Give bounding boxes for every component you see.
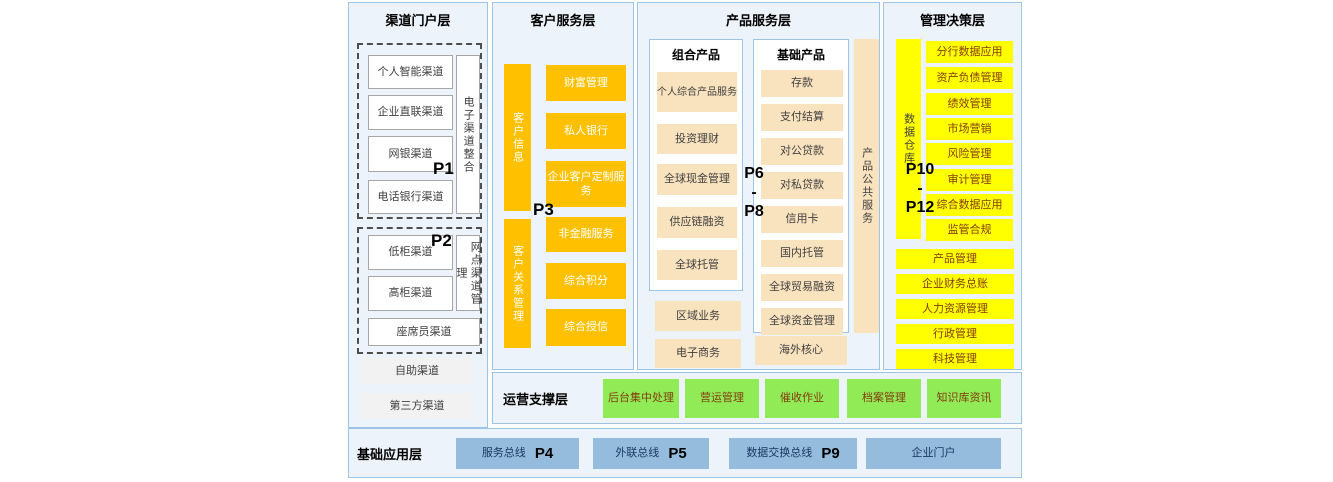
management-decision-layer-panel: 管理决策层 数据仓库 P10 - P12 分行数据应用 资产负债管理 绩效管理 … [883, 2, 1022, 370]
p2-tag: P2 [431, 231, 452, 251]
tag-separator: - [739, 183, 769, 202]
p6-p8-tag: P6 - P8 [739, 164, 769, 221]
product-box: 支付结算 [761, 104, 843, 131]
management-box: 分行数据应用 [926, 41, 1013, 63]
product-box: 区域业务 [655, 301, 741, 331]
channel-portal-layer-panel: 渠道门户层 个人智能渠道 企业直联渠道 网银渠道 电话银行渠道 电子渠道整合 P… [348, 2, 488, 428]
p5-tag: P5 [668, 444, 686, 464]
service-bus-label: 服务总线 [482, 446, 526, 460]
product-box: 全球资金管理 [761, 308, 843, 335]
management-box: 行政管理 [896, 324, 1014, 344]
channel-box: 自助渠道 [361, 358, 473, 384]
management-box: 人力资源管理 [896, 299, 1014, 319]
operations-support-layer-panel: 运营支撑层 后台集中处理 营运管理 催收作业 档案管理 知识库资讯 [492, 372, 1022, 424]
customer-info-bar: 客户信息 [504, 64, 531, 211]
customer-service-box: 财富管理 [546, 65, 626, 101]
management-box: 科技管理 [896, 349, 1014, 369]
product-public-service-bar: 产品公共服务 [854, 39, 879, 333]
operations-box: 知识库资讯 [927, 379, 1001, 418]
product-box: 全球托管 [657, 250, 737, 280]
channel-box: 座席员渠道 [368, 318, 480, 346]
channel-box: 企业直联渠道 [368, 95, 453, 130]
product-box: 对私贷款 [761, 172, 843, 199]
customer-relationship-bar: 客户关系管理 [504, 219, 531, 348]
channel-box: 高柜渠道 [368, 276, 453, 311]
customer-service-layer-panel: 客户服务层 客户信息 财富管理 私人银行 企业客户定制服务 P3 客户关系管理 … [492, 2, 634, 370]
data-exchange-bus-box: 数据交换总线 P9 [729, 438, 857, 469]
p1-tag: P1 [433, 159, 454, 179]
p4-tag: P4 [535, 444, 553, 464]
branch-channel-group: 低柜渠道 高柜渠道 网点渠道管理 座席员渠道 [357, 227, 482, 354]
enterprise-portal-label: 企业门户 [912, 446, 956, 460]
management-box: 企业财务总账 [896, 274, 1014, 294]
customer-service-box: 非金融服务 [546, 217, 626, 252]
product-box: 全球现金管理 [657, 164, 737, 195]
combo-product-title: 组合产品 [650, 46, 742, 63]
management-box: 产品管理 [896, 249, 1014, 269]
customer-service-box: 综合积分 [546, 263, 626, 299]
p12-tag: P12 [892, 198, 948, 217]
product-box: 个人综合产品服务 [657, 72, 737, 112]
product-box: 海外核心 [755, 336, 847, 365]
management-box: 监管合规 [926, 219, 1013, 241]
p9-tag: P9 [821, 444, 839, 464]
product-box: 存款 [761, 70, 843, 97]
foundation-application-layer-panel: 基础应用层 服务总线 P4 外联总线 P5 数据交换总线 P9 企业门户 [348, 428, 1022, 478]
electronic-channel-group: 个人智能渠道 企业直联渠道 网银渠道 电话银行渠道 电子渠道整合 [357, 43, 482, 219]
product-box: 信用卡 [761, 206, 843, 233]
combo-product-subpanel: 组合产品 个人综合产品服务 投资理财 全球现金管理 供应链融资 全球托管 [649, 39, 743, 291]
external-bus-label: 外联总线 [615, 446, 659, 460]
operations-support-layer-title: 运营支撑层 [503, 373, 568, 423]
channel-portal-layer-title: 渠道门户层 [349, 10, 487, 29]
operations-box: 后台集中处理 [603, 379, 679, 418]
channel-box: 电话银行渠道 [368, 180, 453, 214]
product-box: 电子商务 [655, 339, 741, 368]
product-service-layer-panel: 产品服务层 组合产品 个人综合产品服务 投资理财 全球现金管理 供应链融资 全球… [637, 2, 880, 370]
branch-channel-management-bar: 网点渠道管理 [456, 235, 480, 311]
foundation-application-layer-title: 基础应用层 [357, 429, 422, 477]
product-box: 对公贷款 [761, 138, 843, 165]
operations-box: 催收作业 [765, 379, 839, 418]
management-box: 绩效管理 [926, 93, 1013, 115]
operations-box: 档案管理 [847, 379, 921, 418]
product-box: 国内托管 [761, 240, 843, 267]
management-decision-layer-title: 管理决策层 [884, 10, 1021, 29]
product-service-layer-title: 产品服务层 [638, 10, 879, 29]
product-box: 全球贸易融资 [761, 274, 843, 301]
electronic-channel-integration-bar: 电子渠道整合 [456, 55, 480, 214]
basic-product-title: 基础产品 [754, 46, 848, 63]
external-bus-box: 外联总线 P5 [593, 438, 709, 469]
channel-box: 个人智能渠道 [368, 55, 453, 89]
operations-box: 营运管理 [685, 379, 759, 418]
management-box: 资产负债管理 [926, 67, 1013, 89]
architecture-diagram: 渠道门户层 个人智能渠道 企业直联渠道 网银渠道 电话银行渠道 电子渠道整合 P… [0, 0, 1333, 482]
service-bus-box: 服务总线 P4 [456, 438, 579, 469]
p10-p12-tag: P10 - P12 [892, 160, 948, 217]
tag-separator: - [892, 179, 948, 198]
data-exchange-bus-label: 数据交换总线 [746, 446, 812, 460]
enterprise-portal-box: 企业门户 [866, 438, 1001, 469]
product-box: 供应链融资 [657, 207, 737, 238]
customer-service-box: 私人银行 [546, 113, 626, 149]
customer-service-layer-title: 客户服务层 [493, 10, 633, 29]
p10-tag: P10 [892, 160, 948, 179]
product-box: 投资理财 [657, 124, 737, 154]
customer-service-box: 企业客户定制服务 [546, 161, 626, 207]
channel-box: 第三方渠道 [361, 393, 473, 419]
customer-service-box: 综合授信 [546, 309, 626, 346]
p8-tag: P8 [739, 202, 769, 221]
p3-tag: P3 [533, 200, 554, 220]
management-box: 市场营销 [926, 118, 1013, 140]
p6-tag: P6 [739, 164, 769, 183]
